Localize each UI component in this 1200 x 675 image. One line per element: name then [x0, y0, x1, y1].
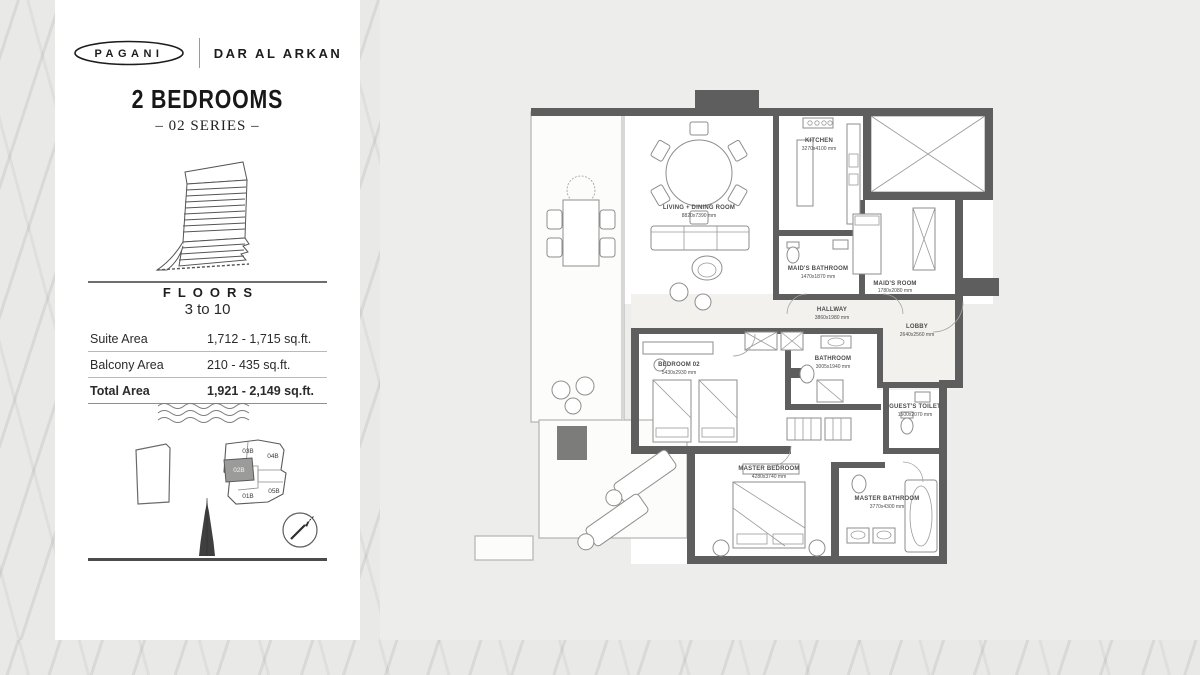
svg-text:1780x2080 mm: 1780x2080 mm	[878, 288, 912, 294]
row-label: Balcony Area	[90, 358, 164, 372]
keyplan-unit-label: 03B	[242, 448, 254, 455]
row-value: 210 - 435 sq.ft.	[207, 358, 325, 372]
room-label-maids-bathroom: MAID'S BATHROOM	[788, 266, 848, 272]
balcony-planter-box	[475, 536, 533, 560]
table-row-total-area: Total Area 1,921 - 2,149 sq.ft.	[88, 378, 327, 404]
keyplan-unit-label: 04B	[267, 453, 279, 460]
svg-text:3770x4300 mm: 3770x4300 mm	[870, 504, 904, 510]
room-label-living-dining: LIVING + DINING ROOM	[663, 205, 735, 211]
pagani-logo-text: PAGANI	[94, 48, 163, 60]
info-card: PAGANI DAR AL ARKAN 2 BEDROOMS – 02 SERI…	[55, 0, 360, 640]
pagani-logo-icon: PAGANI	[73, 40, 185, 66]
adjacent-building-outline	[136, 444, 170, 504]
room-label-kitchen: KITCHEN	[805, 138, 833, 144]
svg-text:1500x2070 mm: 1500x2070 mm	[898, 412, 932, 418]
row-label: Suite Area	[90, 332, 148, 346]
marble-strip-bottom	[0, 640, 1200, 675]
balcony-left	[531, 112, 623, 422]
room-label-bathroom: BATHROOM	[815, 356, 851, 362]
svg-text:2640x2560 mm: 2640x2560 mm	[900, 332, 934, 338]
sofa	[651, 226, 749, 250]
row-value: 1,921 - 2,149 sq.ft.	[207, 384, 325, 398]
burj-silhouette-icon	[193, 498, 221, 565]
keyplan-unit-label-highlighted: 02B	[233, 467, 245, 474]
marble-strip-left	[0, 0, 55, 675]
svg-text:4280x3740 mm: 4280x3740 mm	[752, 474, 786, 480]
svg-text:3860x1980 mm: 3860x1980 mm	[815, 315, 849, 321]
area-table: Suite Area 1,712 - 1,715 sq.ft. Balcony …	[88, 326, 327, 404]
series-subtitle: – 02 SERIES –	[55, 118, 360, 135]
row-value: 1,712 - 1,715 sq.ft.	[207, 332, 325, 346]
table-row-balcony-area: Balcony Area 210 - 435 sq.ft.	[88, 352, 327, 378]
room-label-maids-room: MAID'S ROOM	[873, 281, 916, 287]
svg-text:1470x1870 mm: 1470x1870 mm	[801, 274, 835, 280]
svg-text:3005x1940 mm: 3005x1940 mm	[816, 364, 850, 370]
brand-header: PAGANI DAR AL ARKAN	[55, 38, 360, 68]
room-label-lobby: LOBBY	[906, 324, 928, 330]
logo-divider	[199, 38, 200, 68]
marble-strip-divider	[360, 0, 380, 640]
svg-text:8820x7390 mm: 8820x7390 mm	[682, 213, 716, 219]
room-label-master-bedroom: MASTER BEDROOM	[738, 466, 799, 472]
ground-line	[88, 558, 327, 561]
dar-al-arkan-logo-text: DAR AL ARKAN	[214, 46, 342, 61]
keyplan-unit-label: 01B	[242, 493, 254, 500]
compass-icon	[280, 510, 320, 555]
svg-text:3270x4100 mm: 3270x4100 mm	[802, 146, 836, 152]
wall-notch	[695, 90, 759, 116]
tower-sketch-icon	[123, 150, 293, 278]
svg-text:5430x2930 mm: 5430x2930 mm	[662, 370, 696, 376]
brochure-page: PAGANI DAR AL ARKAN 2 BEDROOMS – 02 SERI…	[0, 0, 1200, 675]
building-baseline	[88, 281, 327, 283]
wardrobe-rails	[787, 418, 851, 440]
water-waves-icon	[55, 402, 360, 426]
floors-label: FLOORS	[55, 285, 360, 300]
floors-value: 3 to 10	[55, 301, 360, 318]
page-title: 2 BEDROOMS	[55, 84, 360, 115]
room-label-master-bathroom: MASTER BATHROOM	[855, 496, 920, 502]
row-label: Total Area	[90, 384, 150, 398]
table-row-suite-area: Suite Area 1,712 - 1,715 sq.ft.	[88, 326, 327, 352]
building-illustration	[55, 150, 360, 278]
room-label-bedroom-02: BEDROOM 02	[658, 362, 700, 368]
keyplan-unit-label: 05B	[268, 488, 280, 495]
keyplan: 03B 04B 02B 01B 05B	[224, 440, 286, 504]
room-label-guest-toilet: GUEST'S TOILET	[889, 404, 941, 410]
floor-plan: LIVING + DINING ROOM 8820x7390 mm KITCHE…	[455, 78, 1015, 583]
room-label-hallway: HALLWAY	[817, 307, 847, 313]
elevator-shaft	[871, 116, 985, 192]
